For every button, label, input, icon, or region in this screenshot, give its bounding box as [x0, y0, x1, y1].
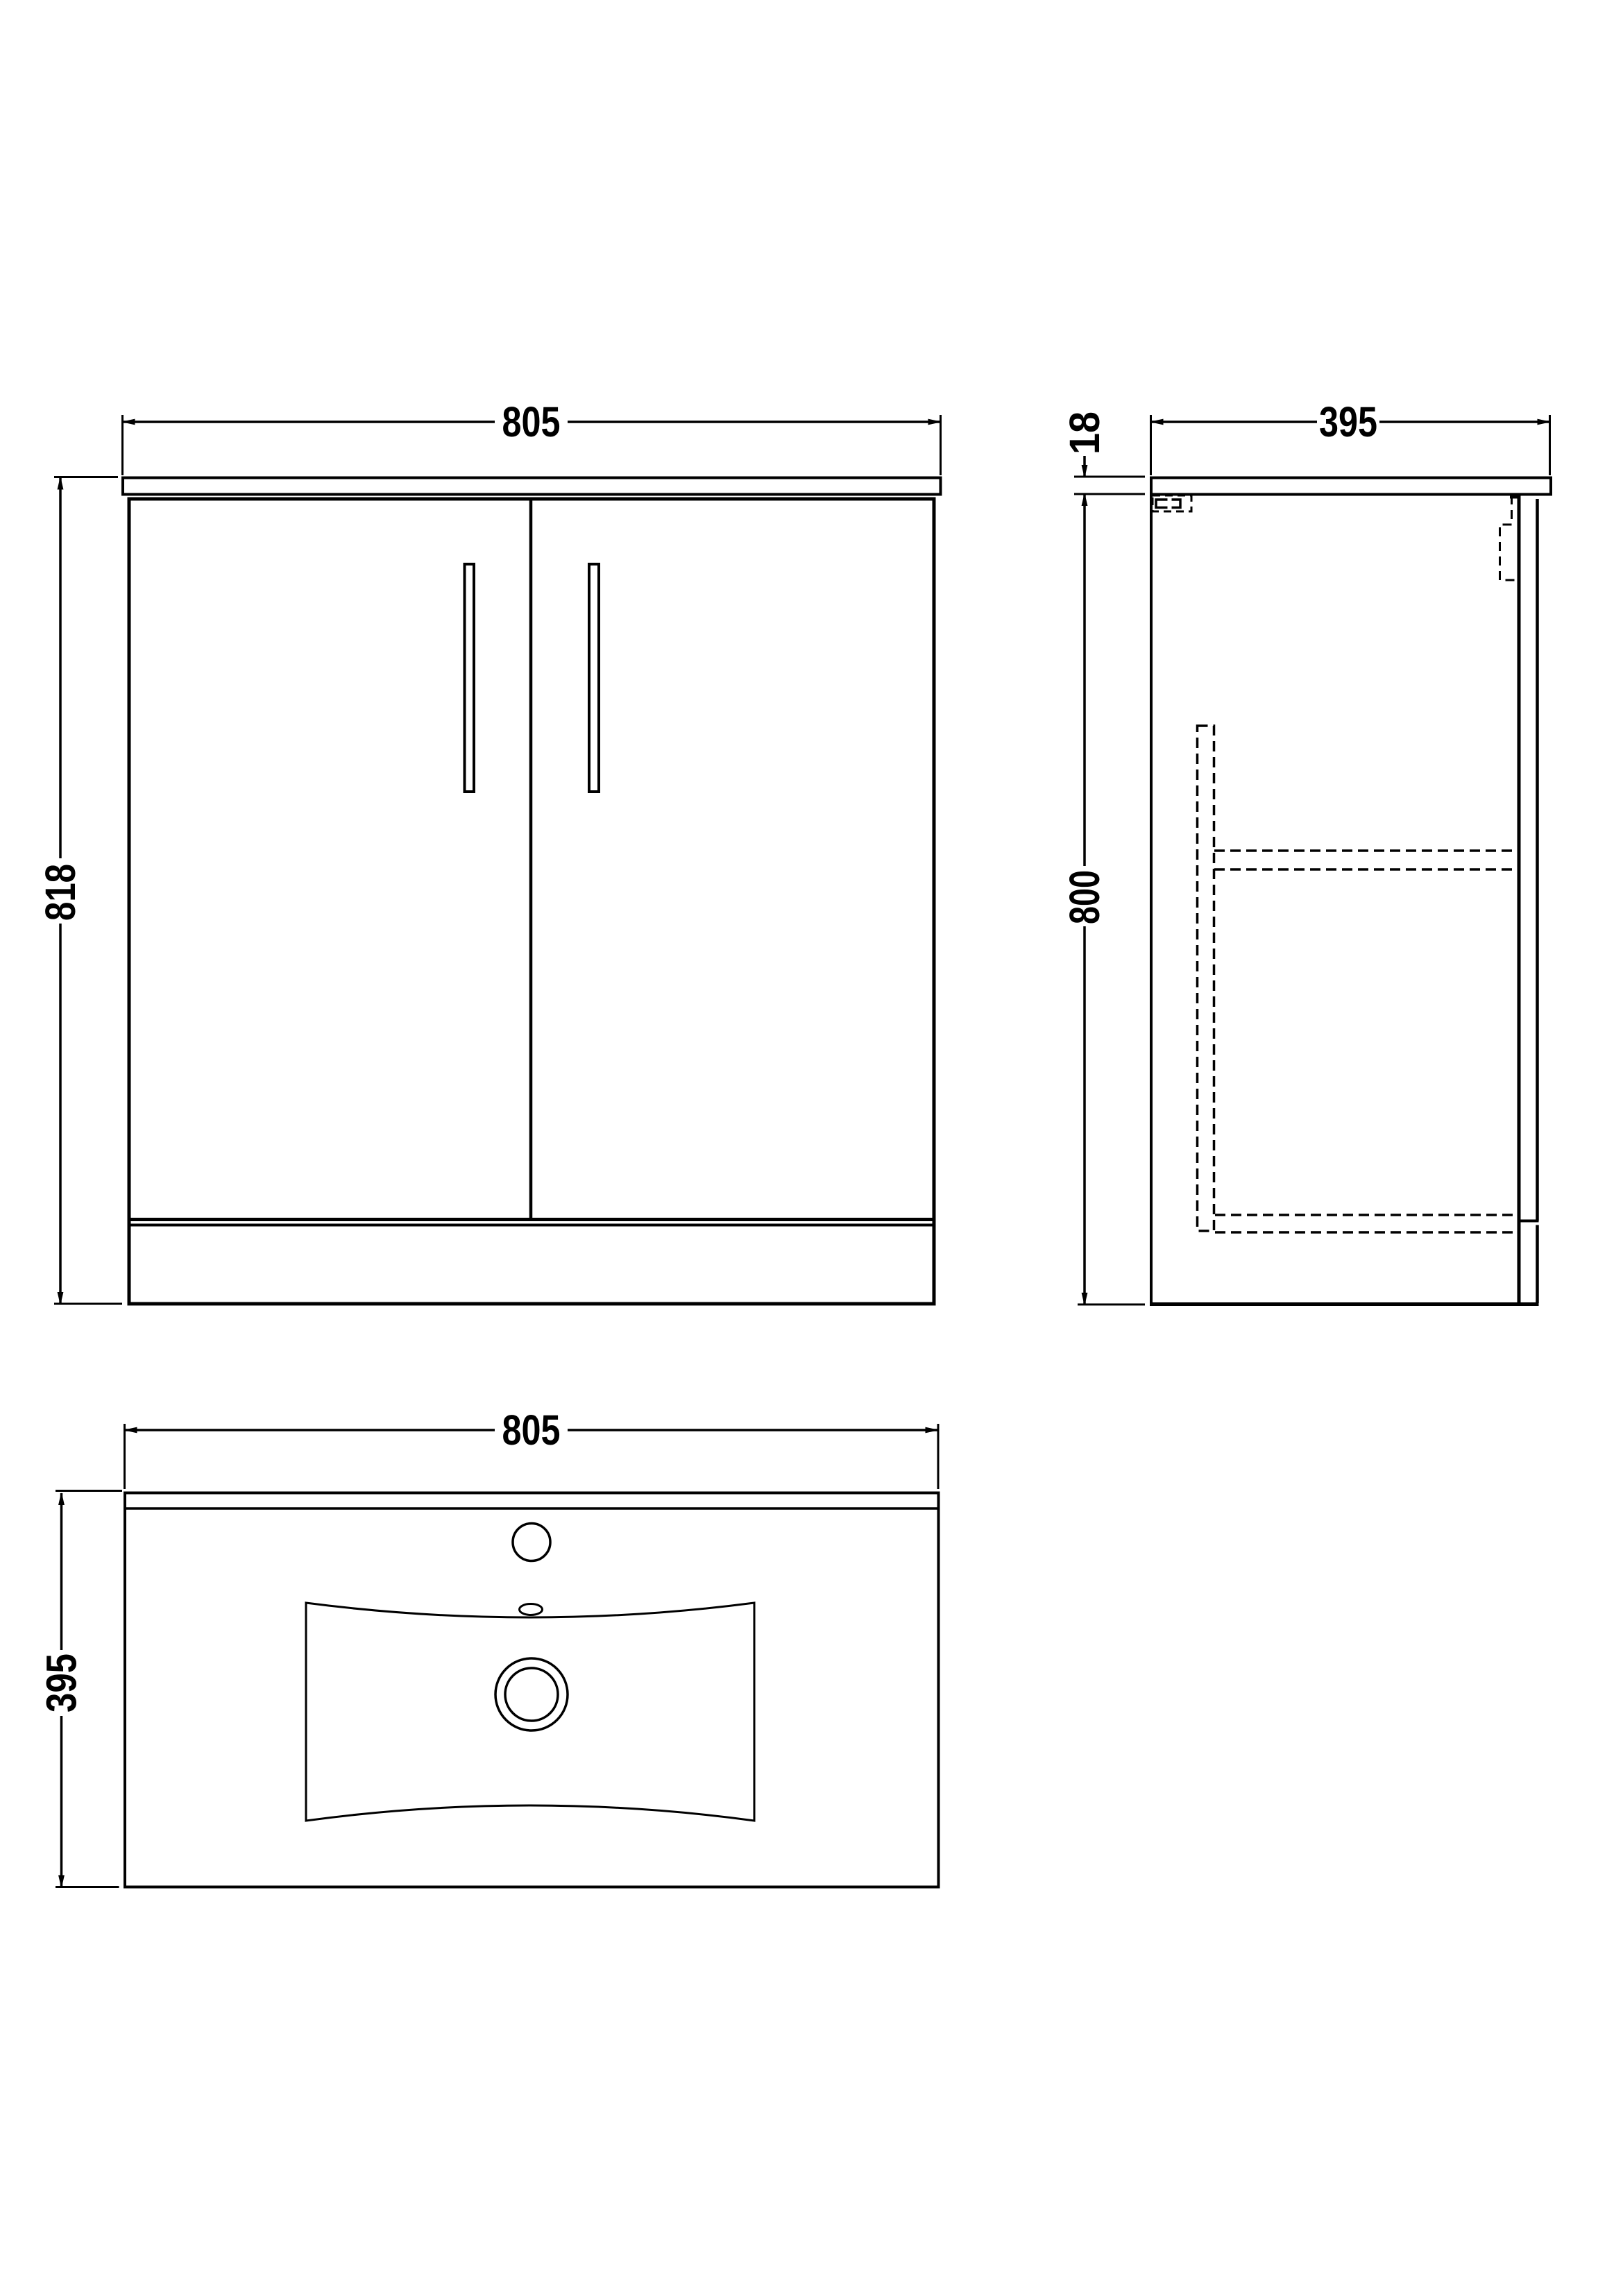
svg-text:395: 395 [38, 1653, 85, 1712]
svg-text:18: 18 [1061, 411, 1108, 454]
svg-text:800: 800 [1061, 870, 1108, 924]
svg-text:395: 395 [1319, 398, 1377, 445]
svg-text:818: 818 [37, 864, 84, 921]
svg-text:805: 805 [502, 398, 561, 445]
svg-text:805: 805 [502, 1406, 561, 1454]
